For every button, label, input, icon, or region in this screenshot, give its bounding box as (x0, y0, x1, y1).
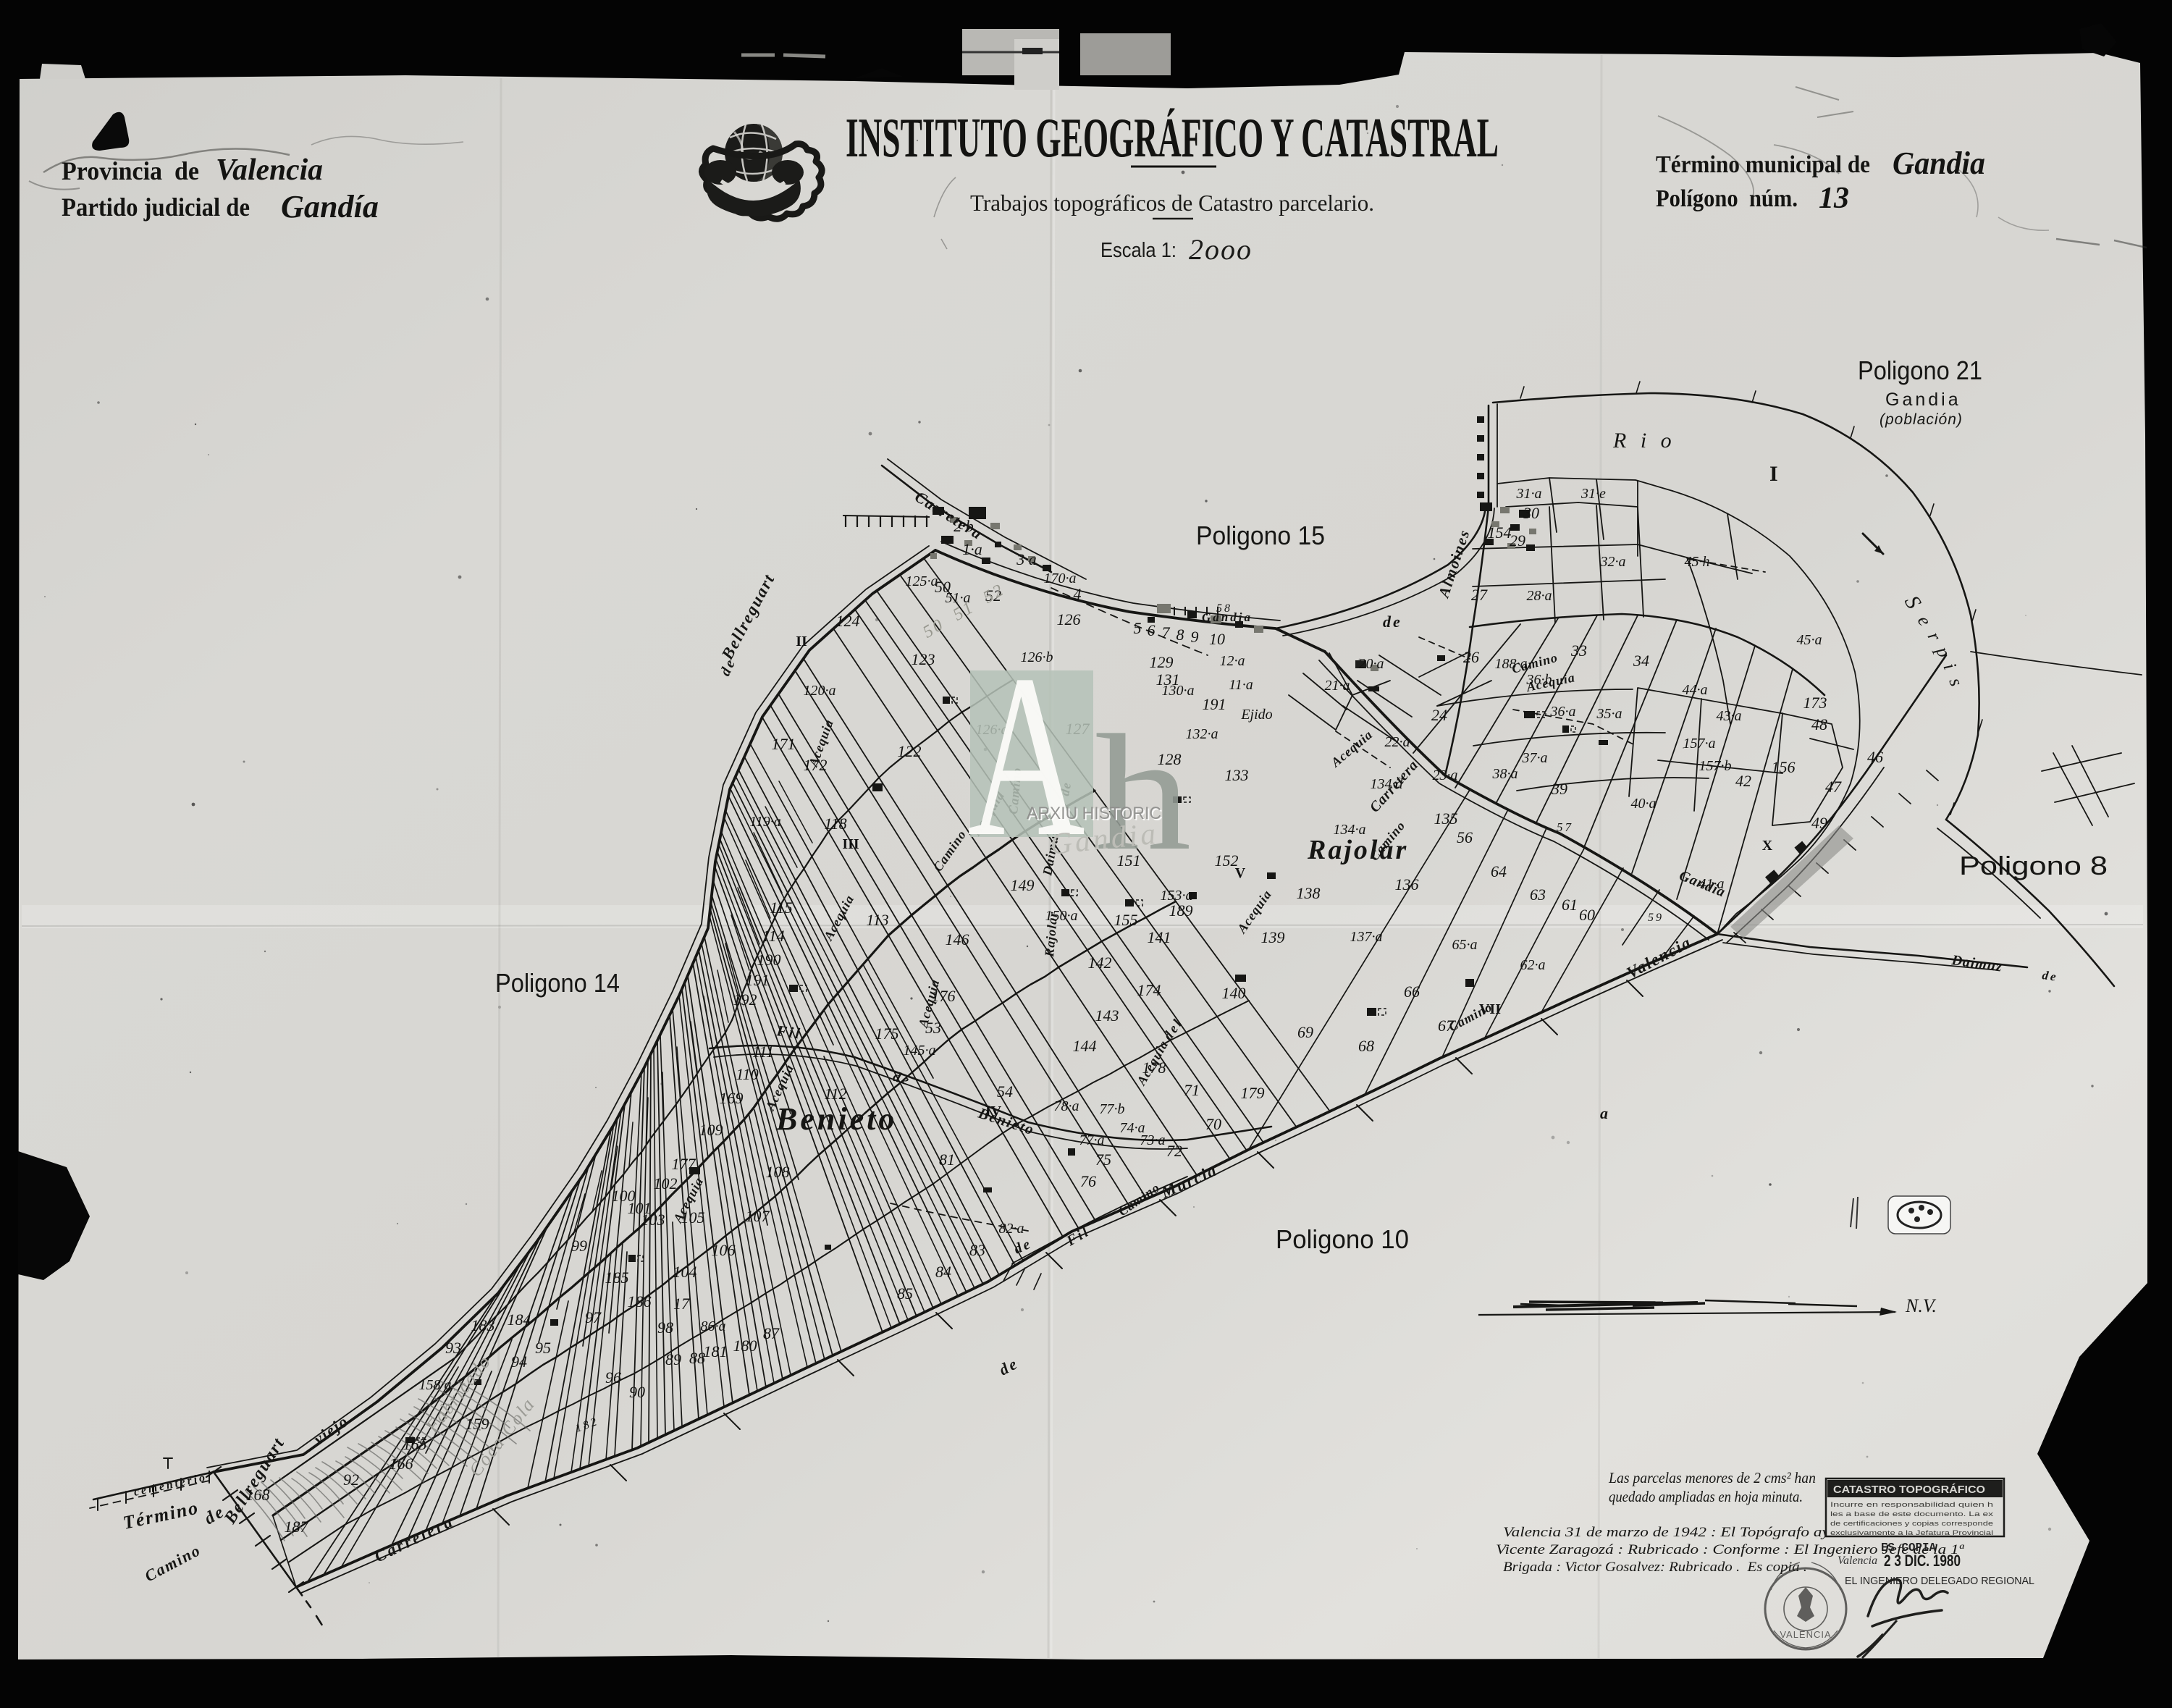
svg-text:37·a: 37·a (1522, 750, 1548, 766)
svg-text:178: 178 (1142, 1059, 1166, 1077)
svg-text:138: 138 (1297, 884, 1321, 902)
svg-text:11·a: 11·a (1229, 677, 1253, 693)
svg-text:106: 106 (712, 1241, 736, 1259)
svg-text:35·a: 35·a (1596, 706, 1622, 722)
svg-text:63: 63 (1530, 885, 1546, 904)
svg-text:(población): (población) (1880, 411, 1963, 428)
svg-text:81: 81 (939, 1150, 955, 1169)
svg-text:155: 155 (1114, 911, 1138, 929)
svg-text:145·a: 145·a (904, 1043, 936, 1059)
svg-text:154: 154 (1488, 523, 1512, 542)
svg-text:187: 187 (285, 1518, 309, 1536)
svg-text:104: 104 (673, 1263, 697, 1281)
svg-text:190: 190 (757, 951, 781, 969)
svg-text:97: 97 (585, 1308, 602, 1326)
svg-text:Ejido: Ejido (1240, 707, 1272, 723)
svg-text:113: 113 (866, 911, 888, 929)
svg-text:111: 111 (752, 1043, 774, 1061)
svg-text:de: de (1383, 613, 1402, 631)
svg-text:17: 17 (673, 1295, 690, 1313)
svg-text:120·a: 120·a (804, 683, 836, 699)
svg-text:92: 92 (343, 1471, 359, 1489)
svg-text:102: 102 (654, 1174, 678, 1192)
svg-text:39: 39 (1551, 780, 1567, 798)
svg-text:60: 60 (1579, 906, 1595, 924)
svg-text:26: 26 (1463, 648, 1479, 666)
svg-text:20·a: 20·a (1359, 656, 1384, 672)
svg-text:133: 133 (1225, 766, 1249, 784)
svg-text:185: 185 (605, 1269, 629, 1287)
svg-text:96: 96 (605, 1368, 621, 1387)
svg-text:107: 107 (746, 1207, 770, 1225)
svg-text:Brigada : Victor Gosalvez: Rub: Brigada : Victor Gosalvez: Rubricado . E… (1503, 1560, 1807, 1575)
svg-text:V: V (1235, 865, 1246, 881)
svg-text:169: 169 (720, 1089, 744, 1107)
svg-text:24: 24 (1431, 706, 1447, 724)
svg-text:Poligono 10: Poligono 10 (1276, 1224, 1409, 1254)
svg-text:189: 189 (1169, 901, 1193, 920)
svg-text:84: 84 (935, 1263, 951, 1281)
svg-text:Fil: Fil (775, 1022, 803, 1043)
svg-text:159: 159 (466, 1415, 489, 1433)
svg-text:170·a: 170·a (1044, 571, 1077, 586)
svg-text:141: 141 (1148, 928, 1171, 946)
svg-text:23·a: 23·a (1433, 767, 1458, 783)
svg-text:Benieto: Benieto (775, 1101, 897, 1137)
svg-text:62·a: 62·a (1520, 957, 1546, 973)
svg-text:70: 70 (1205, 1115, 1221, 1133)
svg-text:30: 30 (1523, 504, 1539, 522)
svg-text:184: 184 (508, 1311, 531, 1329)
svg-text:144: 144 (1073, 1037, 1097, 1055)
svg-text:CATASTRO TOPOGRÁFICO: CATASTRO TOPOGRÁFICO (1833, 1484, 1985, 1496)
svg-text:49: 49 (1811, 814, 1827, 832)
svg-text:I: I (1769, 462, 1780, 486)
svg-text:72: 72 (1166, 1142, 1182, 1160)
svg-text:168: 168 (246, 1486, 270, 1504)
svg-text:12·a: 12·a (1220, 653, 1245, 669)
svg-text:Gandia: Gandia (1885, 390, 1961, 410)
svg-text:Gandia: Gandia (1893, 146, 1985, 181)
svg-text:36·b: 36·b (1526, 672, 1552, 688)
svg-text:56: 56 (1457, 828, 1473, 846)
svg-text:VII: VII (1479, 1001, 1501, 1017)
svg-text:83: 83 (969, 1241, 985, 1259)
svg-text:157·b: 157·b (1699, 758, 1732, 774)
svg-text:125·a: 125·a (906, 573, 938, 589)
svg-text:3·a: 3·a (1016, 550, 1037, 568)
svg-text:les a base de este documento.: les a base de este documento. La ex (1830, 1510, 1994, 1518)
svg-text:1·a: 1·a (962, 540, 982, 558)
svg-text:191: 191 (746, 971, 770, 989)
svg-text:87: 87 (763, 1324, 780, 1342)
svg-text:73·a: 73·a (1140, 1132, 1166, 1148)
svg-text:6: 6 (1148, 621, 1156, 639)
svg-text:h: h (1095, 700, 1191, 885)
svg-text:86·a: 86·a (701, 1318, 726, 1334)
svg-text:85: 85 (897, 1284, 913, 1303)
svg-text:44·a: 44·a (1683, 682, 1708, 698)
svg-text:156: 156 (1772, 758, 1796, 776)
svg-text:188·a: 188·a (1495, 656, 1528, 672)
svg-text:174: 174 (1137, 981, 1161, 999)
svg-text:22·a: 22·a (1385, 734, 1410, 750)
svg-text:139: 139 (1261, 928, 1285, 946)
svg-text:Poligono 14: Poligono 14 (495, 968, 620, 998)
svg-text:IV: IV (985, 1103, 1002, 1119)
svg-text:140: 140 (1222, 984, 1246, 1002)
svg-text:VALENCIA: VALENCIA (1780, 1629, 1831, 1640)
svg-text:180: 180 (733, 1337, 757, 1355)
svg-text:75: 75 (1095, 1150, 1111, 1169)
svg-text:2 3 DIC. 1980: 2 3 DIC. 1980 (1884, 1552, 1961, 1570)
svg-text:8: 8 (1176, 626, 1184, 644)
svg-text:de: de (2041, 968, 2058, 984)
svg-text:Las parcelas menores de 2 cms²: Las parcelas menores de 2 cms² han (1608, 1469, 1816, 1486)
svg-text:129: 129 (1150, 653, 1174, 671)
svg-text:48: 48 (1811, 715, 1827, 733)
svg-text:65·a: 65·a (1452, 937, 1478, 953)
svg-text:146: 146 (946, 930, 969, 948)
svg-text:82·a: 82·a (999, 1221, 1024, 1237)
svg-text:126: 126 (1057, 610, 1081, 628)
svg-text:57: 57 (1557, 820, 1573, 834)
svg-text:Incurre en responsabilidad qui: Incurre en responsabilidad quien h (1830, 1501, 1993, 1508)
svg-text:93: 93 (445, 1339, 461, 1357)
svg-text:88: 88 (689, 1349, 705, 1367)
svg-text:33: 33 (1570, 641, 1587, 660)
svg-text:40·a: 40·a (1631, 796, 1657, 812)
svg-text:EL INGENIERO DELEGADO REGIONAL: EL INGENIERO DELEGADO REGIONAL (1845, 1575, 2034, 1587)
svg-text:118: 118 (824, 815, 846, 833)
svg-text:181: 181 (704, 1342, 728, 1360)
svg-text:10: 10 (1209, 630, 1225, 648)
svg-text:64: 64 (1491, 862, 1507, 880)
svg-text:27: 27 (1471, 586, 1488, 604)
svg-text:59: 59 (1648, 912, 1664, 924)
svg-text:53: 53 (925, 1019, 941, 1037)
svg-text:II: II (796, 634, 807, 649)
svg-text:67: 67 (1438, 1017, 1455, 1035)
svg-text:Partido judicial de: Partido judicial de (62, 193, 250, 222)
svg-text:123: 123 (912, 650, 935, 668)
svg-text:45·a: 45·a (1797, 632, 1822, 648)
svg-text:150·a: 150·a (1045, 908, 1078, 924)
svg-text:47: 47 (1825, 778, 1842, 796)
svg-text:158·a: 158·a (419, 1377, 452, 1393)
svg-text:115: 115 (770, 899, 792, 917)
svg-text:III: III (842, 836, 859, 852)
svg-text:94: 94 (511, 1352, 527, 1371)
svg-text:124: 124 (836, 612, 860, 630)
svg-text:Gandía: Gandía (281, 189, 379, 224)
svg-text:Trabajos topográficos de Catas: Trabajos topográficos de Catastro parcel… (970, 190, 1374, 216)
svg-text:Polígono núm.: Polígono núm. (1656, 185, 1798, 212)
svg-text:2ooo: 2ooo (1189, 233, 1253, 266)
svg-text:Valencia: Valencia (1838, 1555, 1877, 1567)
svg-text:Poligono 21: Poligono 21 (1858, 356, 1982, 385)
svg-text:4: 4 (1074, 585, 1082, 603)
svg-text:a: a (1600, 1104, 1610, 1122)
svg-text:68: 68 (1358, 1037, 1374, 1055)
svg-text:165: 165 (403, 1435, 427, 1453)
svg-text:54: 54 (997, 1082, 1013, 1101)
svg-text:N.V.: N.V. (1905, 1295, 1937, 1316)
svg-text:166: 166 (390, 1455, 413, 1473)
svg-text:28·a: 28·a (1527, 588, 1552, 604)
svg-text:95: 95 (535, 1339, 551, 1357)
svg-text:61: 61 (1562, 896, 1578, 914)
svg-text:119·a: 119·a (749, 814, 781, 830)
svg-text:177: 177 (672, 1155, 696, 1173)
svg-text:143: 143 (1095, 1006, 1119, 1025)
svg-text:98: 98 (657, 1318, 673, 1337)
svg-text:103: 103 (641, 1211, 665, 1229)
svg-text:192: 192 (733, 990, 757, 1009)
svg-text:172: 172 (804, 756, 828, 774)
svg-text:179: 179 (1241, 1084, 1265, 1102)
svg-text:77·b: 77·b (1100, 1101, 1125, 1117)
svg-text:137·a: 137·a (1350, 929, 1383, 945)
svg-text:69: 69 (1297, 1023, 1313, 1041)
svg-text:191: 191 (1203, 695, 1226, 713)
svg-text:134·d: 134·d (1371, 776, 1404, 792)
svg-text:77·a: 77·a (1079, 1132, 1105, 1148)
svg-text:112: 112 (824, 1085, 846, 1103)
svg-text:89: 89 (665, 1350, 681, 1368)
svg-text:108: 108 (766, 1163, 790, 1181)
svg-text:114: 114 (762, 927, 784, 945)
svg-text:41·a: 41·a (1699, 876, 1725, 892)
svg-text:186: 186 (628, 1292, 652, 1311)
svg-text:71: 71 (1184, 1081, 1200, 1099)
svg-text:Poligono 8: Poligono 8 (1959, 851, 2108, 880)
svg-text:Escala 1:: Escala 1: (1100, 239, 1176, 262)
svg-text:78·a: 78·a (1054, 1098, 1079, 1114)
svg-text:45·h: 45·h (1685, 554, 1710, 570)
svg-text:110: 110 (736, 1065, 758, 1083)
svg-text:13: 13 (1819, 182, 1849, 215)
svg-text:31·a: 31·a (1516, 486, 1542, 502)
svg-text:Provincia de: Provincia de (62, 156, 199, 185)
svg-text:66: 66 (1404, 983, 1420, 1001)
svg-text:29: 29 (1510, 531, 1525, 550)
svg-text:5: 5 (1134, 619, 1142, 637)
svg-text:9: 9 (1191, 628, 1199, 646)
svg-text:90: 90 (629, 1383, 645, 1401)
svg-text:36·a: 36·a (1550, 704, 1576, 720)
svg-text:122: 122 (898, 742, 922, 760)
svg-text:R i o: R i o (1612, 429, 1676, 453)
svg-text:171: 171 (772, 735, 796, 753)
svg-text:142: 142 (1088, 954, 1112, 972)
svg-text:31·e: 31·e (1580, 486, 1606, 502)
svg-text:Poligono 15: Poligono 15 (1196, 521, 1325, 550)
svg-text:Valencia: Valencia (216, 153, 323, 187)
svg-text:136: 136 (1395, 875, 1419, 893)
svg-text:quedado ampliadas en hoja minu: quedado ampliadas en hoja minuta. (1609, 1488, 1803, 1505)
svg-text:Término municipal de: Término municipal de (1656, 151, 1870, 178)
svg-text:105: 105 (681, 1208, 705, 1227)
svg-text:99: 99 (571, 1237, 587, 1255)
svg-text:134·a: 134·a (1334, 822, 1366, 838)
svg-text:X: X (1762, 838, 1773, 854)
svg-text:7: 7 (1162, 623, 1171, 641)
svg-text:76: 76 (1080, 1172, 1096, 1190)
svg-text:183: 183 (471, 1316, 495, 1334)
svg-text:43·a: 43·a (1717, 708, 1742, 724)
svg-text:2·b: 2·b (954, 517, 974, 535)
svg-text:de certificaciones y copias co: de certificaciones y copias corresponde (1830, 1520, 1993, 1527)
svg-text:exclusivamente a la Jefatura P: exclusivamente a la Jefatura Provincial (1830, 1529, 1993, 1536)
svg-text:INSTITUTO GEOGRÁFICO Y CATASTR: INSTITUTO GEOGRÁFICO Y CATASTRAL (846, 106, 1499, 169)
svg-text:131: 131 (1156, 670, 1180, 689)
svg-text:58: 58 (1216, 602, 1232, 615)
svg-text:38·a: 38·a (1492, 766, 1518, 782)
svg-text:109: 109 (699, 1121, 723, 1139)
svg-text:175: 175 (875, 1025, 899, 1043)
svg-text:173: 173 (1803, 694, 1827, 712)
svg-text:34: 34 (1633, 652, 1649, 670)
svg-text:42: 42 (1735, 772, 1751, 790)
svg-text:32·a: 32·a (1600, 554, 1626, 570)
svg-text:153·a: 153·a (1161, 888, 1193, 904)
svg-text:46: 46 (1867, 748, 1883, 766)
svg-text:21·a: 21·a (1325, 678, 1350, 694)
svg-text:135: 135 (1434, 809, 1458, 828)
svg-text:157·a: 157·a (1683, 736, 1716, 752)
svg-text:176: 176 (932, 987, 956, 1005)
